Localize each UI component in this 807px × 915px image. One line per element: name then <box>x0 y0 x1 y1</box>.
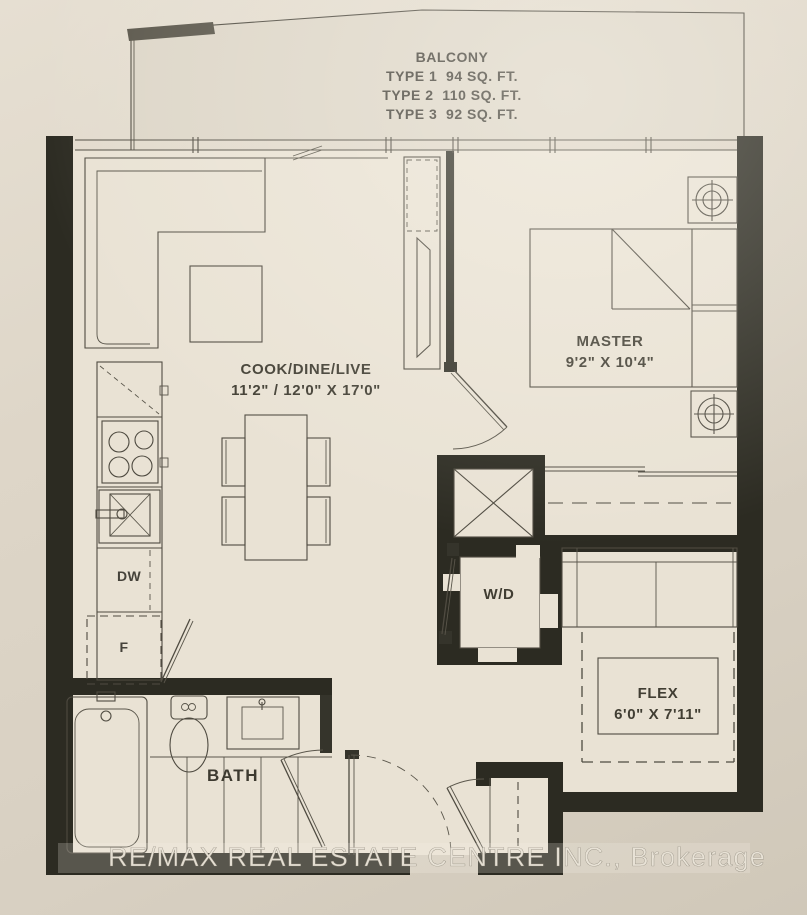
dishwasher-label: DW <box>117 568 142 584</box>
master-dims: 9'2" X 10'4" <box>566 354 655 371</box>
flex-dims: 6'0" X 7'11" <box>614 706 702 723</box>
bath-label: BATH <box>207 766 259 785</box>
living-room-label: COOK/DINE/LIVE <box>241 361 372 378</box>
watermark-text: RE/MAX REAL ESTATE CENTRE INC., Brokerag… <box>108 842 766 872</box>
master-floor <box>455 150 737 455</box>
master-label: MASTER <box>577 333 644 350</box>
hall-closet-jamb <box>345 750 359 759</box>
flex-floor <box>562 548 737 792</box>
balcony-type2: TYPE 2 110 SQ. FT. <box>382 87 521 103</box>
floorplan-drawing: BALCONY TYPE 1 94 SQ. FT. TYPE 2 110 SQ.… <box>0 0 807 915</box>
washer-dryer-tab-bottom <box>478 648 517 662</box>
balcony-type1: TYPE 1 94 SQ. FT. <box>386 68 518 84</box>
wall-right <box>737 136 763 812</box>
laundry-label: W/D <box>484 586 515 603</box>
master-doorway-floor <box>447 370 455 455</box>
wall-closet-bottom <box>545 535 763 552</box>
wall-bath-right <box>320 695 332 753</box>
wall-left <box>46 136 73 855</box>
flex-label: FLEX <box>638 685 679 702</box>
hall-bath-floor <box>73 690 478 855</box>
balcony-type3: TYPE 3 92 SQ. FT. <box>386 106 518 122</box>
fridge-label: F <box>120 639 129 655</box>
laundry-door-jamb-top <box>447 543 459 556</box>
living-room-dims: 11'2" / 12'0" X 17'0" <box>231 382 381 399</box>
watermark: RE/MAX REAL ESTATE CENTRE INC., Brokerag… <box>58 842 766 873</box>
wall-flex-bottom <box>560 792 763 812</box>
wall-bath-top <box>46 678 332 695</box>
floorplan-page: BALCONY TYPE 1 94 SQ. FT. TYPE 2 110 SQ.… <box>0 0 807 915</box>
balcony-title: BALCONY <box>416 49 489 65</box>
living-floor <box>73 150 447 690</box>
wall-living-master-divider <box>446 151 454 370</box>
wall-entry-jamb <box>476 762 491 786</box>
shaft <box>454 469 533 537</box>
washer-dryer-tab-right <box>540 594 558 628</box>
hall-nook-floor <box>447 665 562 763</box>
washer-dryer-tab-top <box>516 545 540 558</box>
